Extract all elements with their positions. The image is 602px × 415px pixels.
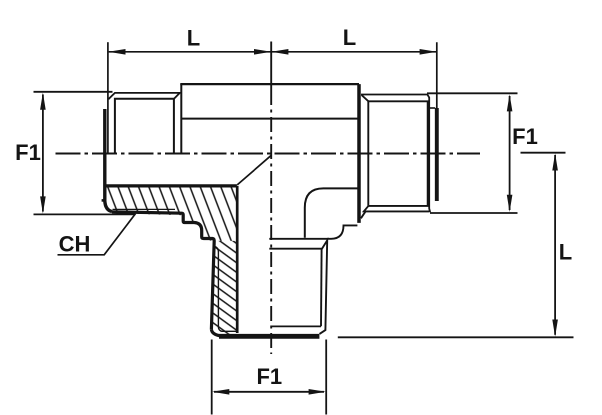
svg-text:CH: CH xyxy=(59,232,91,257)
svg-text:F1: F1 xyxy=(256,364,282,389)
svg-text:L: L xyxy=(187,25,200,50)
svg-text:F1: F1 xyxy=(512,124,538,149)
svg-text:F1: F1 xyxy=(15,140,41,165)
svg-text:L: L xyxy=(559,239,572,264)
svg-text:L: L xyxy=(343,25,356,50)
